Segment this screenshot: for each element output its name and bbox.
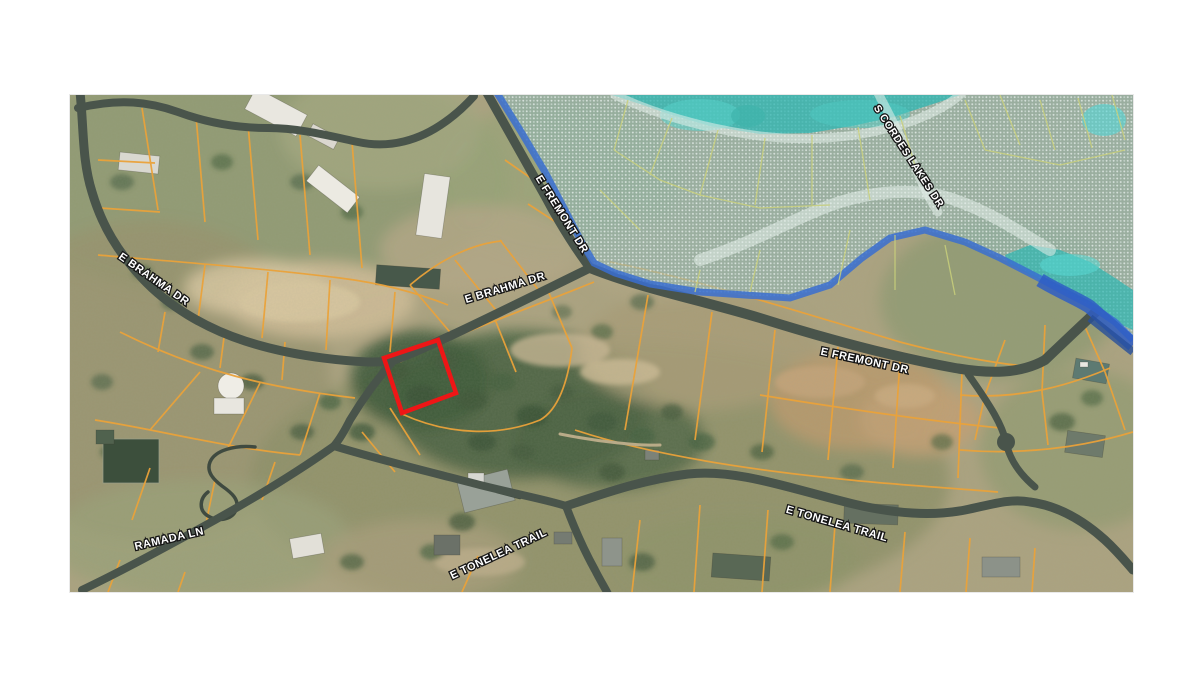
page-background: E BRAHMA DR E BRAHMA DR E FREMONT DR E F… — [0, 0, 1200, 675]
cul-de-sac-bulb — [997, 433, 1015, 451]
map-canvas[interactable]: E BRAHMA DR E BRAHMA DR E FREMONT DR E F… — [70, 95, 1133, 592]
map-viewport[interactable]: E BRAHMA DR E BRAHMA DR E FREMONT DR E F… — [70, 95, 1133, 592]
